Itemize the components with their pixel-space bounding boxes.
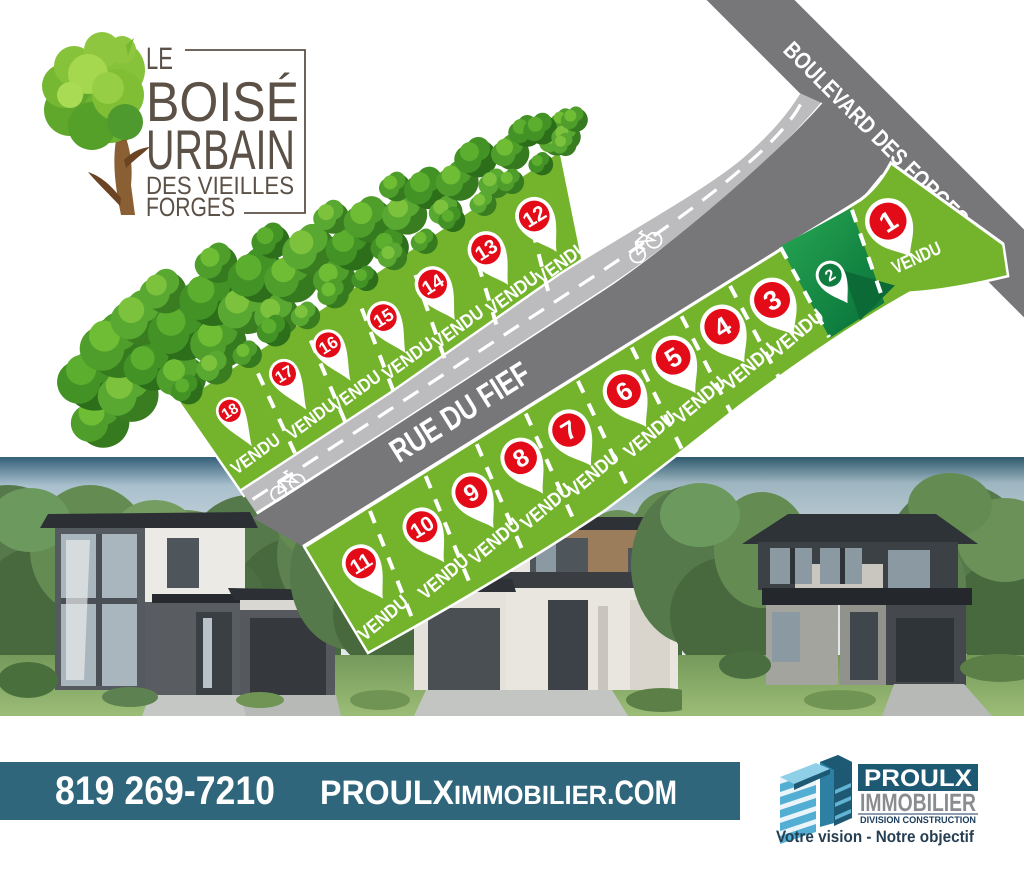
svg-text:Votre vision - Notre objectif: Votre vision - Notre objectif: [776, 828, 974, 846]
svg-text:PROULXIMMOBILIER.COM: PROULXIMMOBILIER.COM: [320, 774, 677, 812]
svg-text:IMMOBILIER: IMMOBILIER: [860, 789, 976, 817]
svg-text:FORGES: FORGES: [146, 192, 235, 222]
svg-text:819 269-7210: 819 269-7210: [55, 769, 275, 813]
svg-text:PROULX: PROULX: [864, 765, 972, 792]
svg-text:DIVISION CONSTRUCTION: DIVISION CONSTRUCTION: [860, 815, 976, 826]
